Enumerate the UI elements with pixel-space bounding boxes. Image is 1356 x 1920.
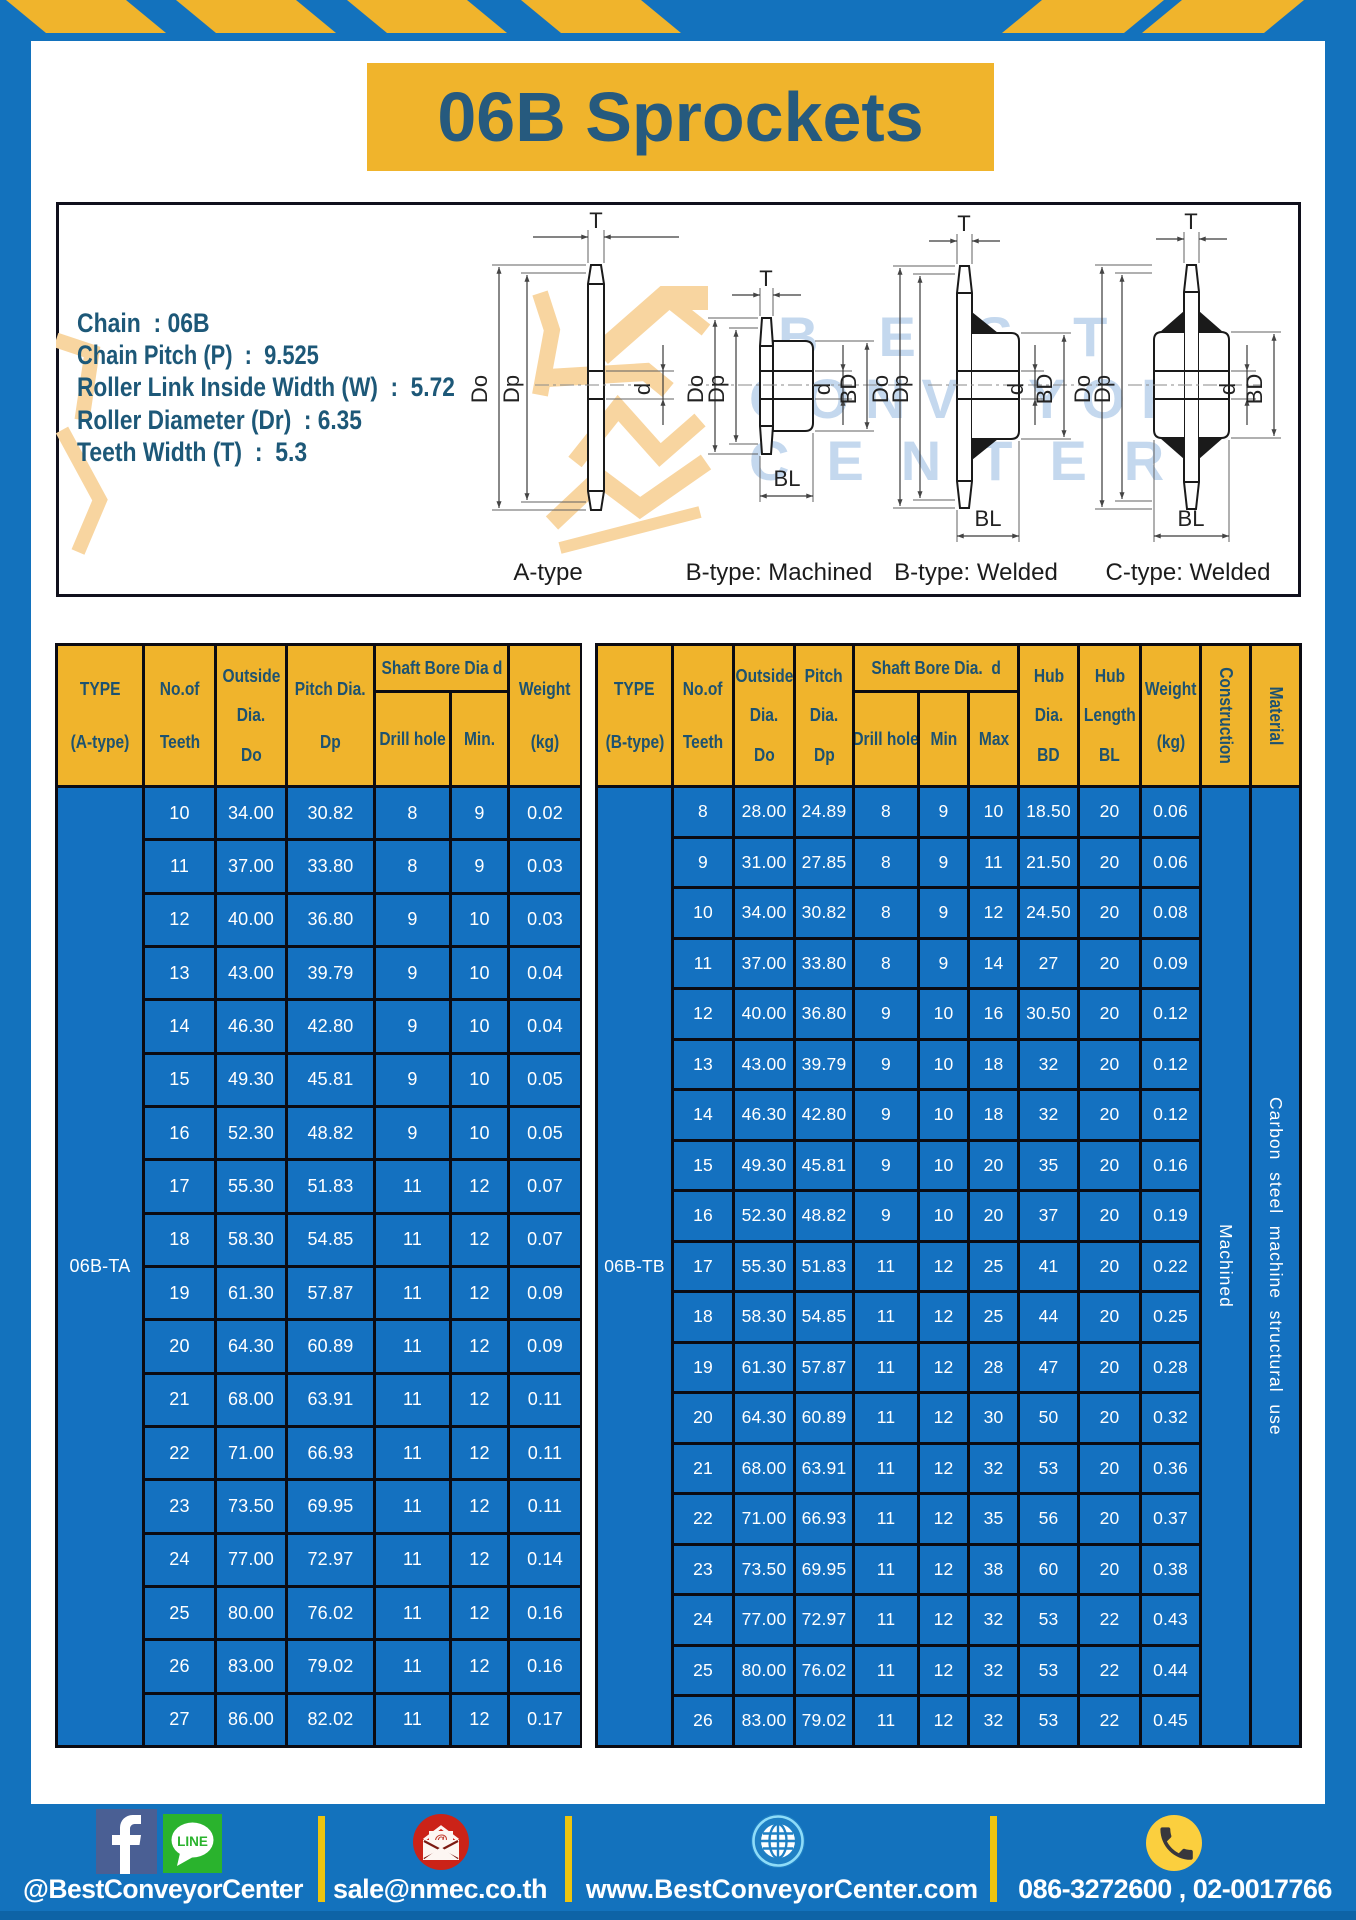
svg-text:d: d bbox=[630, 383, 655, 395]
svg-text:d: d bbox=[1215, 383, 1240, 395]
svg-text:T: T bbox=[1184, 209, 1197, 234]
svg-text:B-type: Welded: B-type: Welded bbox=[894, 559, 1058, 586]
svg-text:T: T bbox=[759, 266, 772, 291]
svg-text:BL: BL bbox=[774, 466, 801, 491]
svg-text:Dp: Dp bbox=[704, 375, 729, 403]
svg-text:LINE: LINE bbox=[177, 1834, 208, 1849]
svg-text:B-type: Machined: B-type: Machined bbox=[686, 559, 873, 586]
svg-text:C-type: Welded: C-type: Welded bbox=[1106, 559, 1271, 586]
svg-text:BL: BL bbox=[975, 506, 1002, 531]
svg-text:Dp: Dp bbox=[1090, 375, 1115, 403]
svg-text:BD: BD bbox=[1032, 374, 1057, 405]
svg-text:BD: BD bbox=[1242, 374, 1267, 405]
svg-text:T: T bbox=[957, 211, 970, 236]
svg-text:BD: BD bbox=[836, 374, 861, 405]
svg-text:d: d bbox=[1003, 383, 1028, 395]
svg-text:d: d bbox=[810, 383, 835, 395]
svg-text:BL: BL bbox=[1178, 506, 1205, 531]
svg-text:T: T bbox=[589, 208, 602, 233]
svg-text:Dp: Dp bbox=[888, 375, 913, 403]
svg-text:A-type: A-type bbox=[513, 559, 582, 586]
